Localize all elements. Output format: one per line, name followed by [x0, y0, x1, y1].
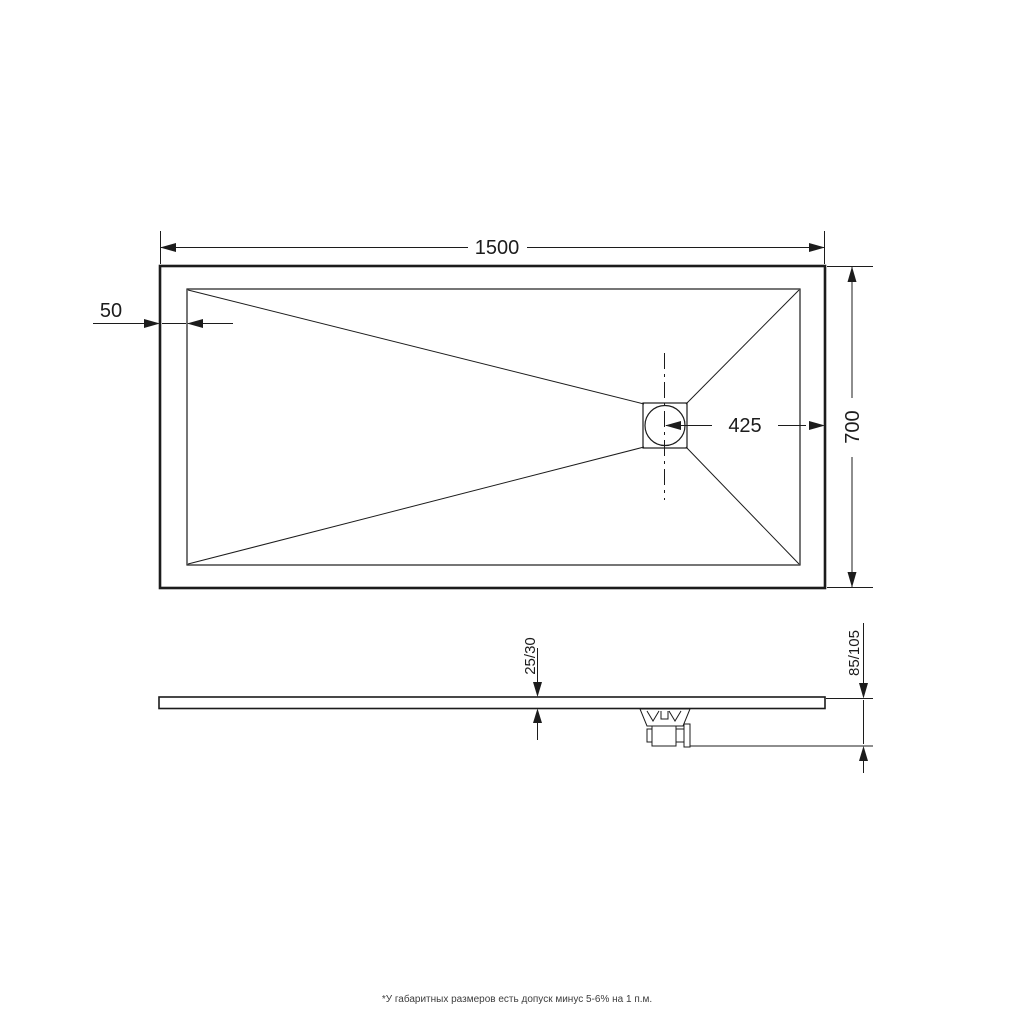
- arrowhead-up-icon: [848, 267, 857, 283]
- trap-clip-right: [669, 711, 681, 721]
- fold-line-top-left: [188, 290, 644, 404]
- top-view: 1500 50 425 700: [93, 231, 873, 588]
- trap-tab: [647, 729, 652, 742]
- arrowhead-up-icon: [533, 709, 542, 724]
- arrowhead-right-icon: [144, 319, 160, 328]
- arrowhead-right-icon: [809, 243, 825, 252]
- tolerance-footnote: *У габаритных размеров есть допуск минус…: [382, 993, 652, 1005]
- trap-body: [652, 726, 676, 746]
- arrowhead-down-icon: [533, 682, 542, 697]
- dim-top-width: 1500: [160, 231, 825, 264]
- tray-inner-edge: [187, 289, 800, 565]
- dim-label-total-height: 85/105: [846, 630, 863, 676]
- technical-drawing-page: 1500 50 425 700: [0, 0, 1028, 1028]
- arrowhead-left-icon: [665, 421, 681, 430]
- arrowhead-down-icon: [859, 683, 868, 699]
- dim-edge-offset: 50: [93, 300, 233, 328]
- dim-depth: 700: [827, 267, 873, 588]
- dim-label-drain-offset: 425: [728, 415, 761, 437]
- tray-profile: [159, 697, 825, 709]
- trap-outlet-pipe: [676, 729, 684, 742]
- arrowhead-down-icon: [848, 572, 857, 588]
- dim-label-thickness: 25/30: [522, 637, 539, 675]
- fold-line-top-right: [686, 290, 799, 404]
- arrowhead-up-icon: [859, 746, 868, 761]
- slope-fold-lines: [188, 290, 799, 564]
- fold-line-bottom-right: [686, 447, 799, 564]
- arrowhead-right-icon: [809, 421, 825, 430]
- dim-label-depth: 700: [842, 410, 864, 443]
- dim-label-top-width: 1500: [475, 237, 520, 259]
- arrowhead-left-icon: [187, 319, 203, 328]
- dim-label-edge-offset: 50: [100, 300, 122, 322]
- shower-tray-drawing: 1500 50 425 700: [0, 0, 1028, 1028]
- side-view: 25/30 85/105: [159, 623, 873, 773]
- arrowhead-left-icon: [160, 243, 176, 252]
- trap-outlet-flange: [684, 724, 690, 747]
- fold-line-bottom-left: [188, 447, 644, 564]
- trap-clip-left: [647, 711, 659, 721]
- drain-trap: [640, 709, 690, 747]
- dim-drain-offset: 425: [665, 415, 825, 437]
- trap-clip-center: [661, 711, 668, 719]
- tray-outer-edge: [160, 266, 825, 588]
- dim-thickness: 25/30: [522, 637, 542, 740]
